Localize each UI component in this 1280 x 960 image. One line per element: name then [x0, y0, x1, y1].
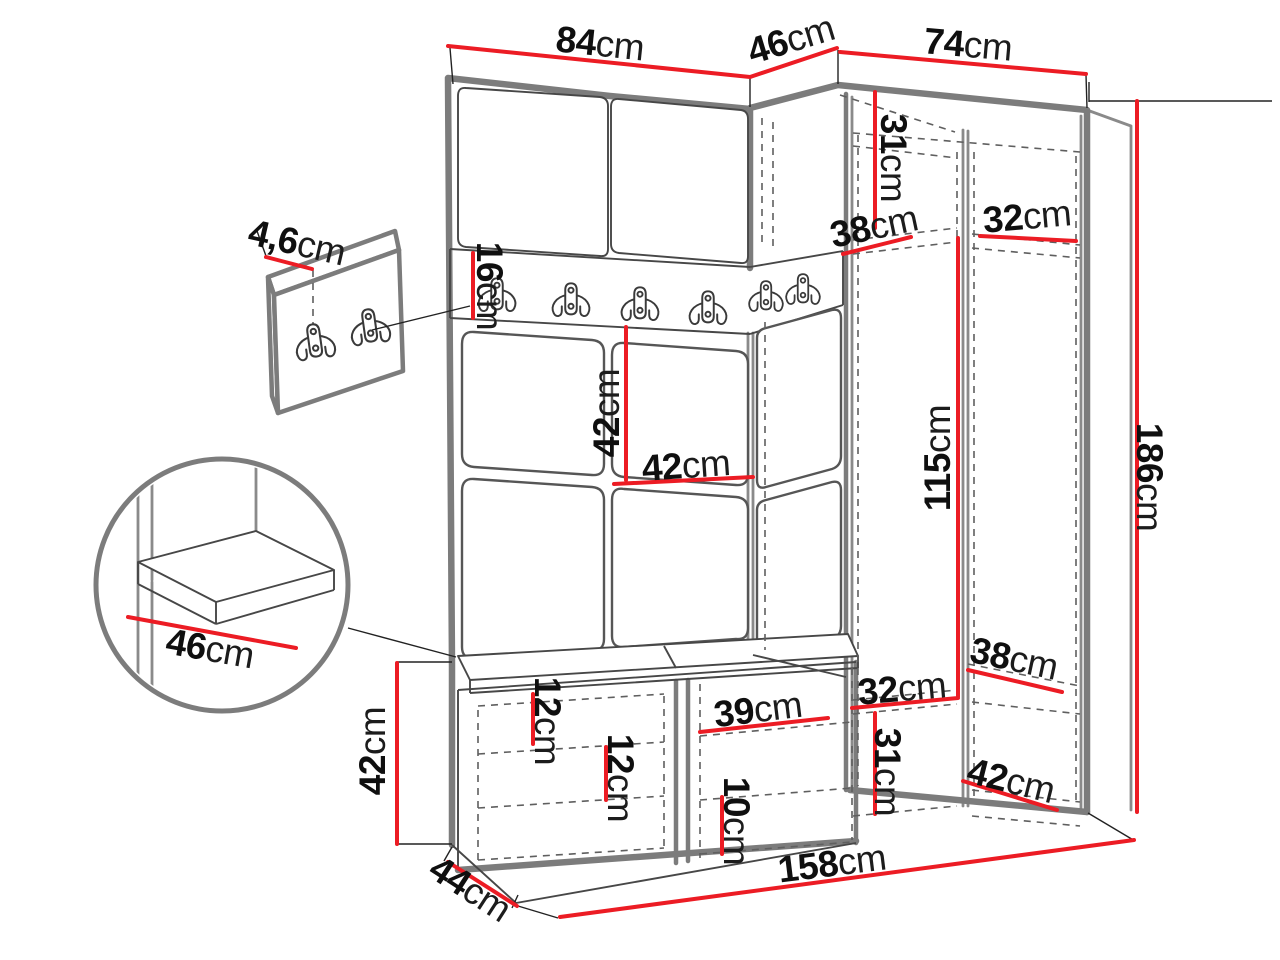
- dim-unit: cm: [469, 282, 510, 330]
- dim-value: 16: [469, 242, 510, 282]
- dim-unit: cm: [917, 405, 958, 453]
- dim-unit: cm: [352, 707, 393, 755]
- dim-value: 32: [856, 668, 900, 712]
- dim-lower-shelf-width-left: 32cm: [856, 664, 948, 714]
- dim-unit: cm: [835, 837, 888, 884]
- dim-unit: cm: [586, 369, 627, 417]
- dim-unit: cm: [896, 664, 948, 709]
- dim-unit: cm: [1006, 638, 1062, 688]
- dim-unit: cm: [867, 768, 908, 816]
- dim-value: 158: [776, 842, 841, 890]
- dim-unit: cm: [680, 442, 731, 486]
- dim-total-height: 186cm: [1128, 423, 1170, 532]
- furniture-dimension-diagram: 84cm 46cm 74cm 31cm 38cm 32cm 16cm 4,6cm…: [0, 0, 1280, 960]
- dim-unit: cm: [600, 774, 641, 822]
- dim-value: 31: [867, 728, 908, 768]
- upper-cabinet-doors: [458, 88, 748, 263]
- dim-upper-compartment-height: 31cm: [872, 114, 914, 202]
- dim-unit: cm: [594, 23, 646, 69]
- dim-value: 115: [917, 453, 958, 511]
- dim-unit: cm: [716, 817, 757, 865]
- dim-unit: cm: [866, 197, 922, 247]
- dim-value: 39: [712, 690, 757, 736]
- dim-value: 186: [1129, 423, 1170, 483]
- dim-top-width-right: 74cm: [922, 20, 1014, 70]
- dim-bench-shelf-gap-a: 12cm: [526, 677, 568, 765]
- dim-value: 12: [600, 734, 641, 774]
- dim-unit: cm: [873, 154, 914, 202]
- dim-value: 10: [716, 777, 757, 817]
- dim-unit: cm: [527, 717, 568, 765]
- dim-unit: cm: [751, 684, 804, 731]
- dim-value: 74: [922, 20, 966, 64]
- dim-back-panel-width: 42cm: [640, 442, 731, 490]
- dim-value: 12: [527, 677, 568, 717]
- dim-value: 42: [586, 417, 627, 457]
- dim-bench-shelf-gap-b: 12cm: [599, 734, 641, 822]
- dim-unit: cm: [1129, 483, 1170, 531]
- dim-bench-shelf-height: 10cm: [715, 777, 757, 865]
- dim-upper-shelf-width-right: 32cm: [981, 192, 1073, 242]
- dim-back-panel-height: 42cm: [586, 369, 628, 457]
- dim-hook-rail-height: 16cm: [468, 242, 510, 330]
- dim-bench-height: 42cm: [352, 707, 394, 795]
- dim-value: 42: [352, 755, 393, 795]
- dim-value: 84: [554, 18, 598, 63]
- dim-lower-compartment-height: 31cm: [866, 728, 908, 816]
- dim-hanging-space-height: 115cm: [917, 405, 959, 512]
- dim-unit: cm: [1021, 192, 1073, 237]
- dim-value: 42: [640, 445, 683, 489]
- dim-value: 32: [981, 196, 1025, 240]
- dim-unit: cm: [962, 24, 1014, 69]
- dim-unit: cm: [203, 628, 258, 677]
- dim-value: 31: [873, 114, 914, 154]
